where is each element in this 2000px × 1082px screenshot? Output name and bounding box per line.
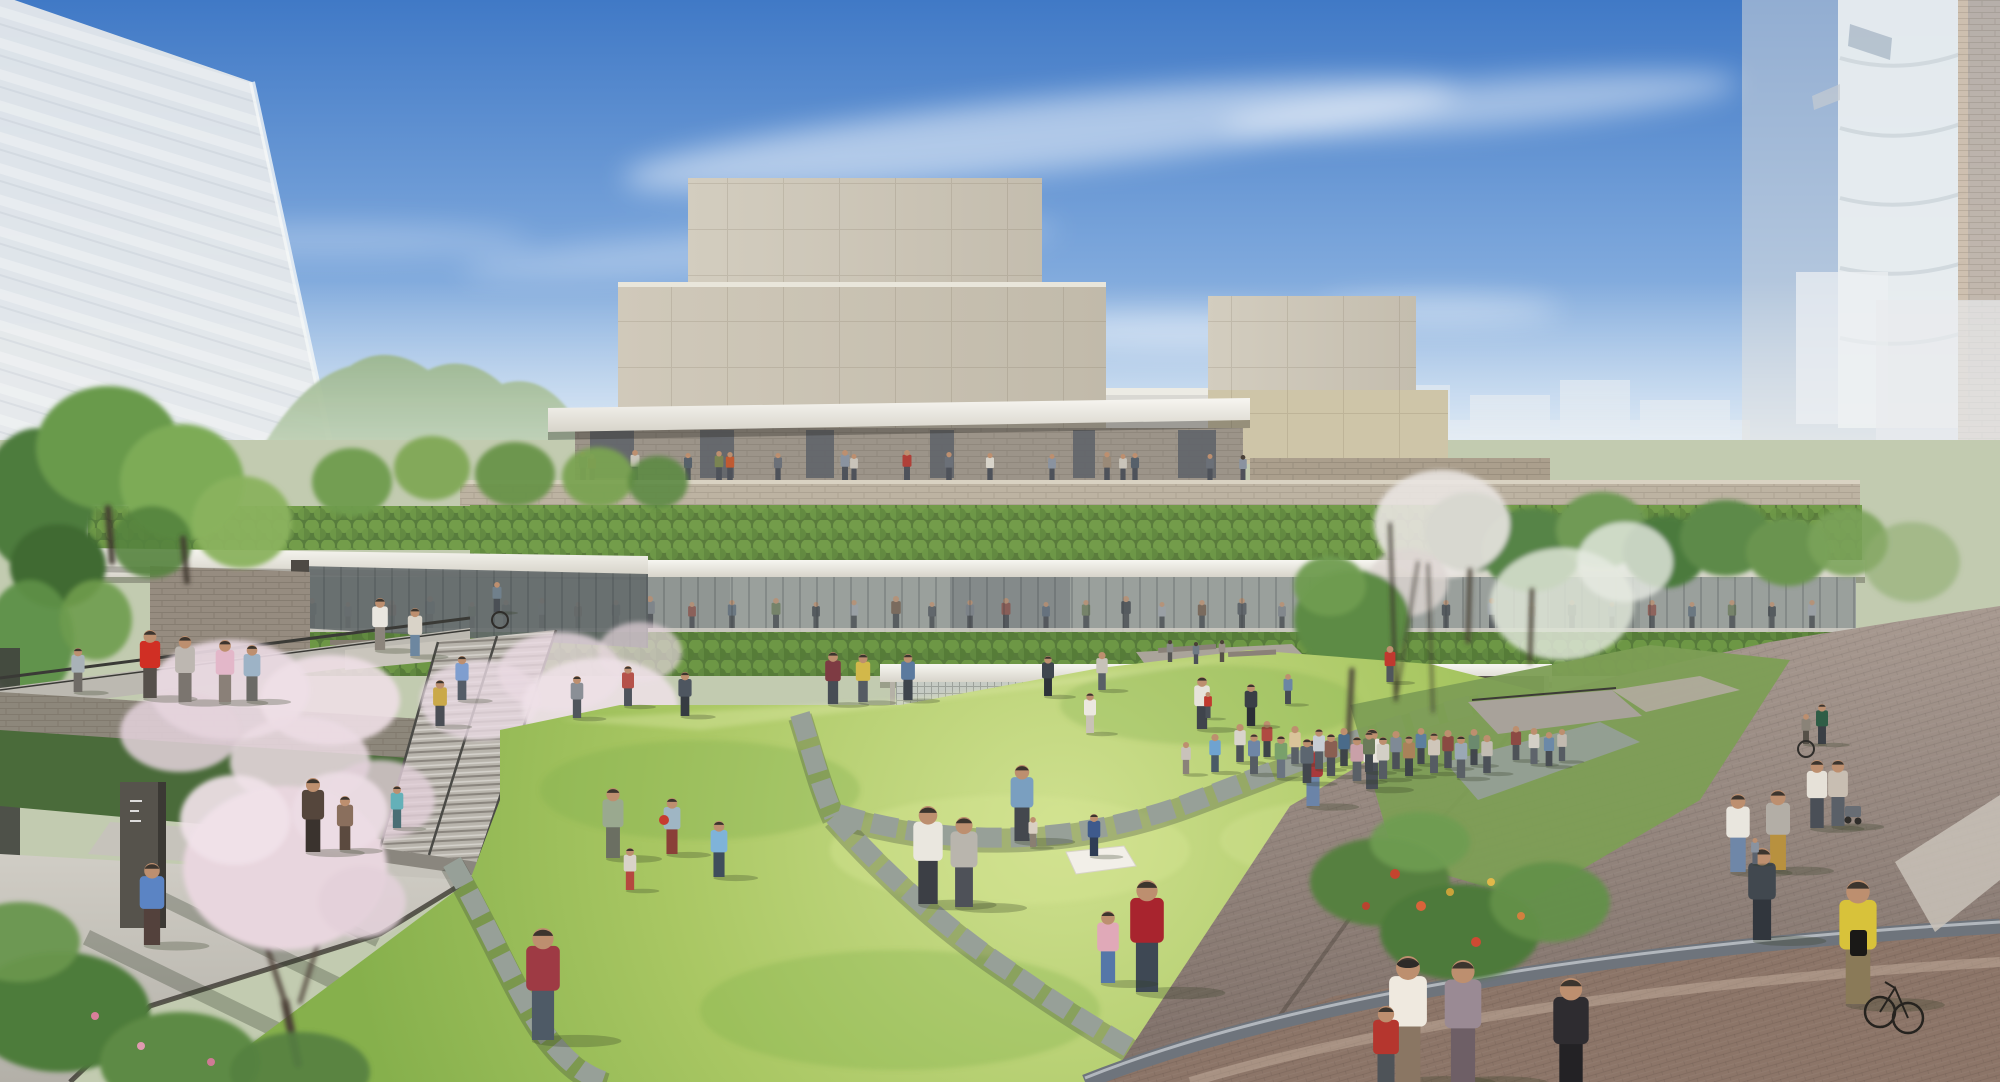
- tree-canopy: [1577, 522, 1673, 602]
- tree-canopy: [180, 775, 290, 865]
- flower: [1517, 912, 1525, 920]
- flower: [1487, 878, 1495, 886]
- architectural-rendering: [0, 0, 2000, 1082]
- stroller-wheel: [1845, 817, 1852, 824]
- stroller: [1845, 806, 1861, 817]
- flower: [137, 1042, 145, 1050]
- tree-canopy: [312, 448, 392, 516]
- flower: [1416, 901, 1426, 911]
- flower: [207, 1058, 215, 1066]
- tree-canopy: [628, 456, 688, 508]
- annex-upper-seams: [1208, 296, 1416, 394]
- ghost-block-a: [1796, 272, 1888, 424]
- lower-volume-roof-edge: [618, 282, 1106, 287]
- tree-canopy: [475, 442, 555, 506]
- upper-volume-panel-seams: [688, 178, 1042, 284]
- tree-trunk: [1530, 590, 1532, 662]
- backpack: [1850, 930, 1867, 956]
- tree-canopy: [394, 436, 470, 500]
- tree-canopy: [1294, 556, 1366, 616]
- tree-canopy: [1490, 862, 1610, 942]
- tree-canopy: [60, 580, 132, 660]
- tree-canopy: [562, 447, 634, 507]
- tree-canopy: [1864, 522, 1960, 602]
- ball: [659, 815, 669, 825]
- link-roof: [1106, 388, 1208, 395]
- flower: [1390, 869, 1400, 879]
- tree-canopy: [318, 866, 406, 938]
- rendering-canvas: [0, 0, 2000, 1082]
- flower: [91, 1012, 99, 1020]
- flower: [1471, 937, 1481, 947]
- tree-trunk: [1468, 570, 1470, 642]
- tree-trunk: [108, 508, 112, 562]
- tree-canopy: [1370, 812, 1470, 872]
- tree-canopy: [192, 476, 292, 568]
- tree-canopy: [112, 506, 192, 578]
- flower: [1362, 902, 1370, 910]
- stroller-wheel: [1855, 818, 1862, 825]
- sun-hat: [1397, 960, 1419, 968]
- flower: [1446, 888, 1454, 896]
